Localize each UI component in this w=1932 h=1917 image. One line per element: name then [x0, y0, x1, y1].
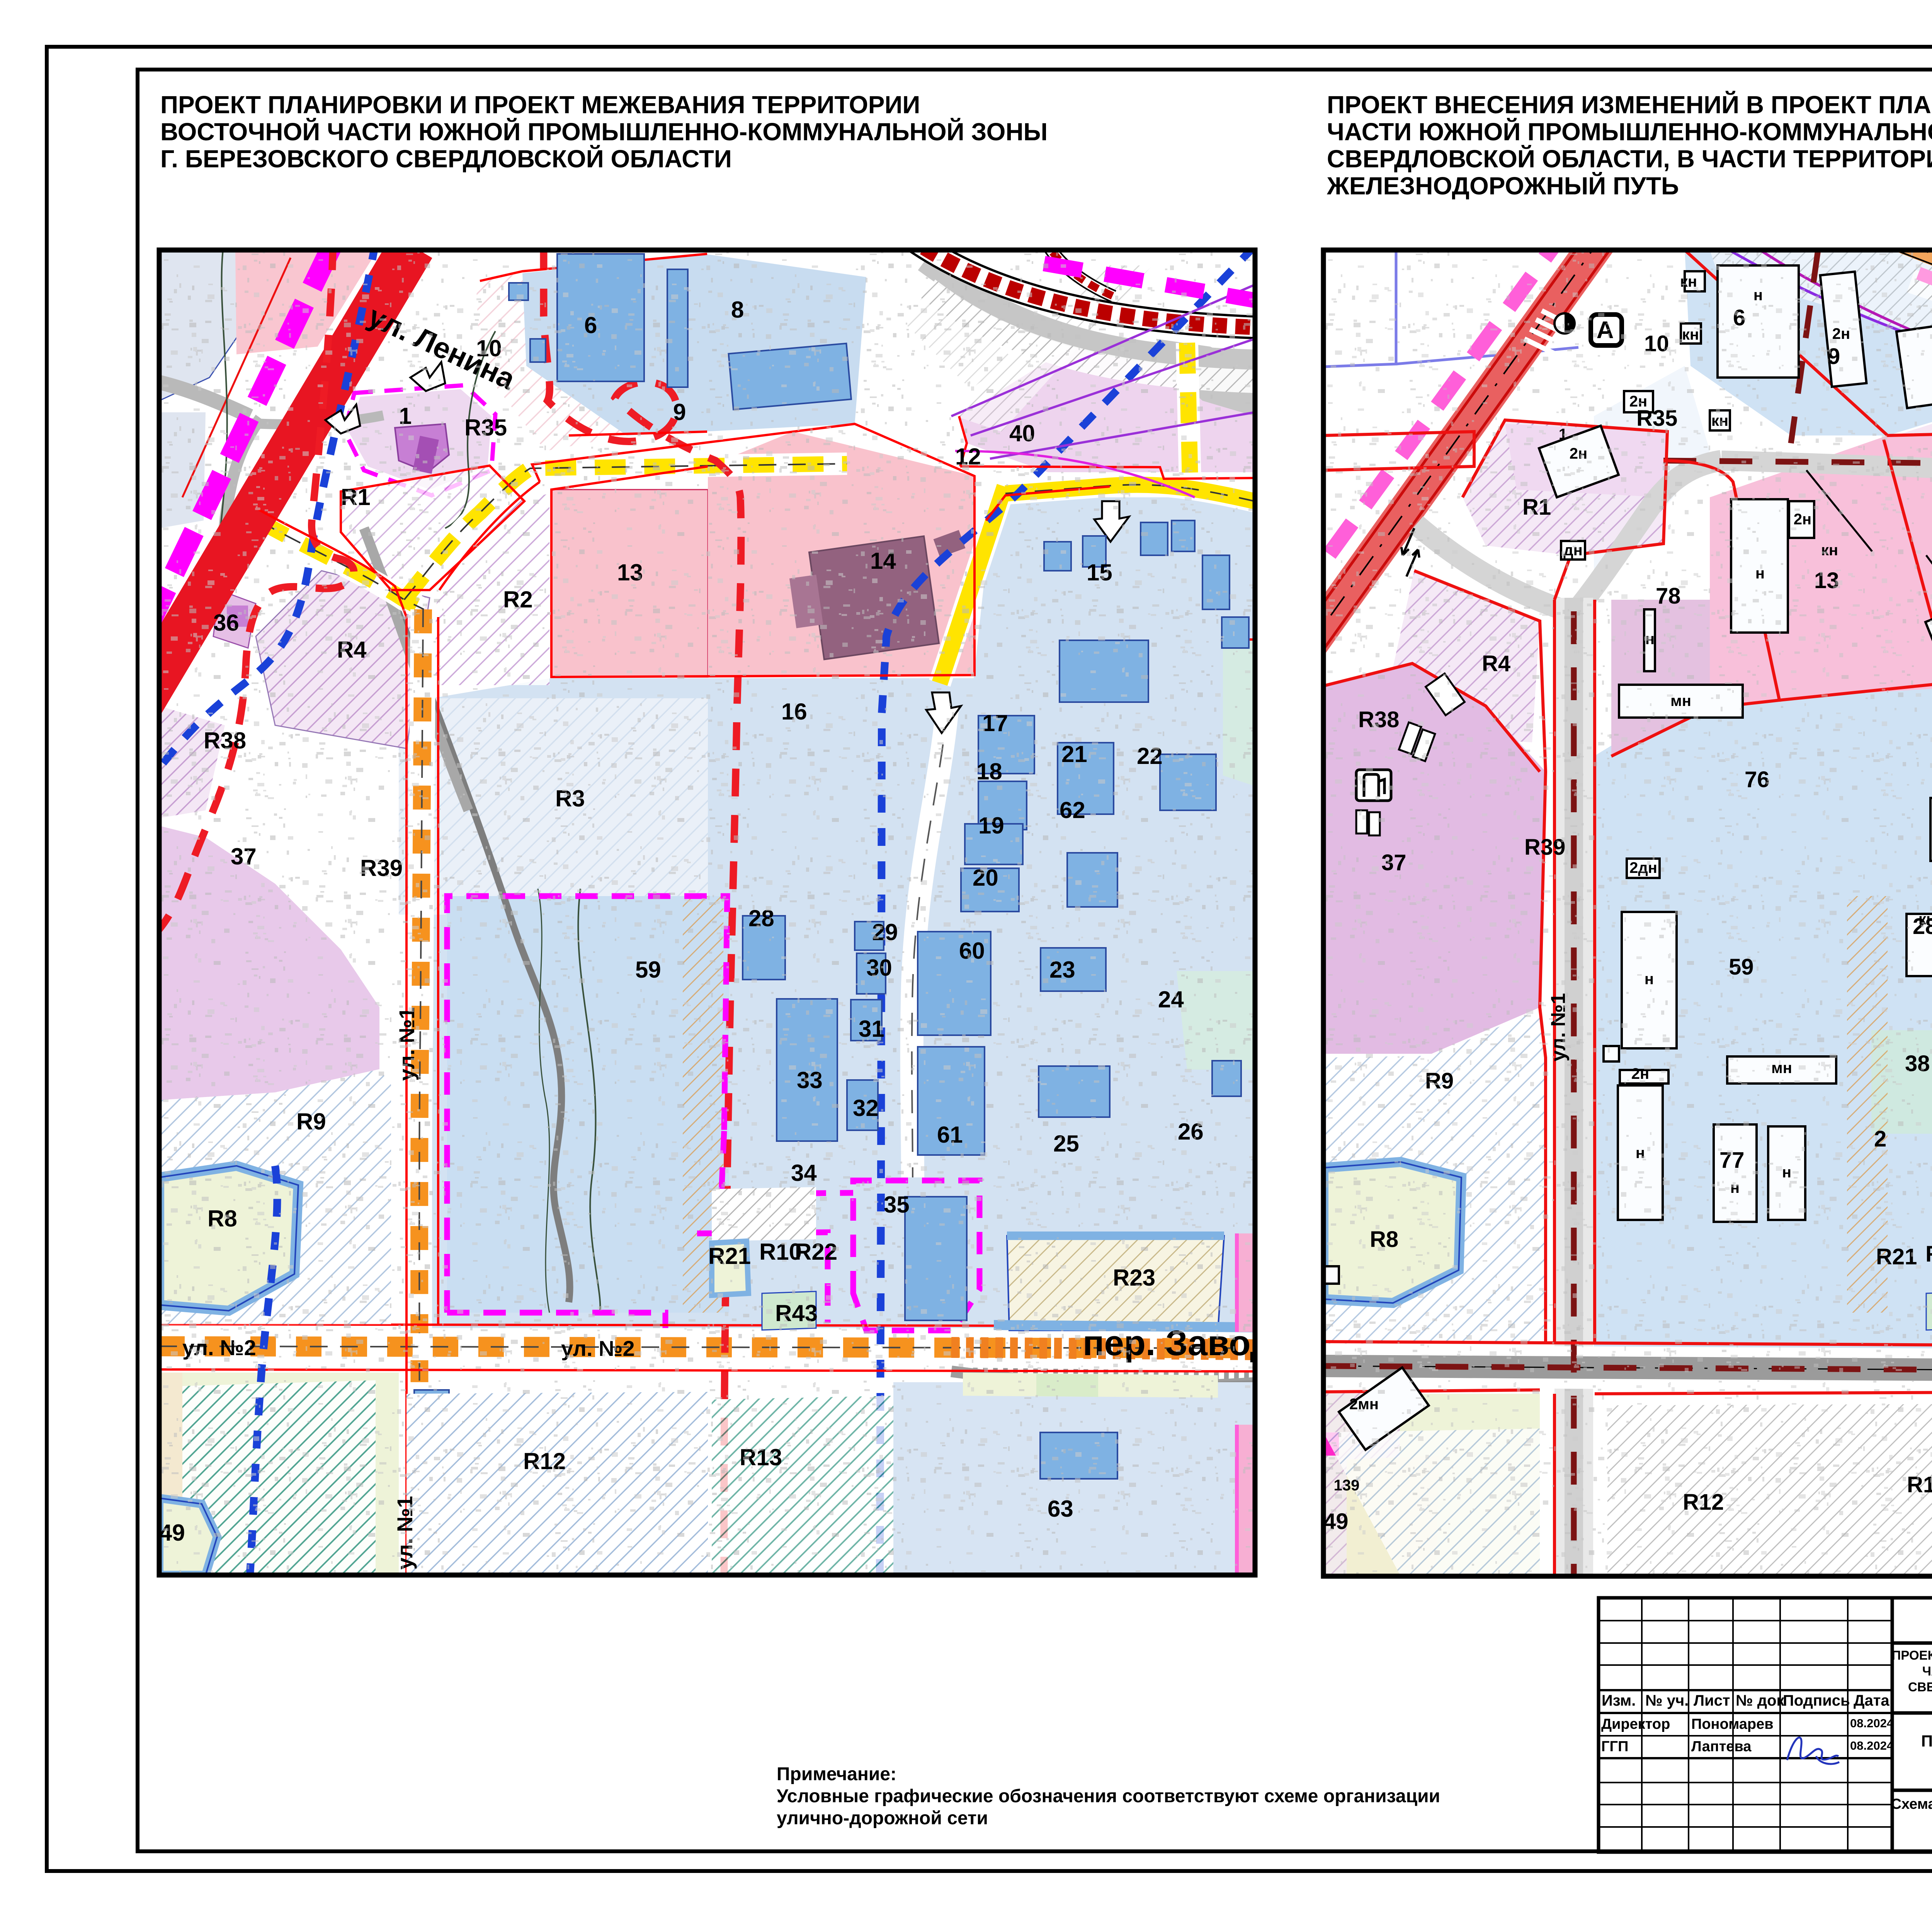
svg-text:ЧАСТИ ЮЖНОЙ ПРОМЫШЛЕННО-КОММУН: ЧАСТИ ЮЖНОЙ ПРОМЫШЛЕННО-КОММУНАЛЬНОЙ ЗОН…: [1922, 1664, 1932, 1678]
svg-text:№ док: № док: [1736, 1692, 1785, 1709]
svg-text:ГГП: ГГП: [1601, 1738, 1628, 1755]
svg-text:ВОСТОЧНОЙ ЧАСТИ ЮЖНОЙ ПРОМЫШЛЕ: ВОСТОЧНОЙ ЧАСТИ ЮЖНОЙ ПРОМЫШЛЕННО-КОММУН…: [160, 117, 1048, 146]
svg-text:ПРОЕКТ ВНЕСЕНИЯ ИЗМЕНЕНИЙ В ПР: ПРОЕКТ ВНЕСЕНИЯ ИЗМЕНЕНИЙ В ПРОЕКТ ПЛАНИ…: [1327, 90, 1932, 119]
svg-text:ПРОЕКТ ВНЕСЕНИЯ ИЗМЕНЕНИЙ В ПР: ПРОЕКТ ВНЕСЕНИЯ ИЗМЕНЕНИЙ В ПРОЕКТ ПЛАНИ…: [1892, 1648, 1932, 1662]
svg-text:Схема организации улично-дорож: Схема организации улично-дорожной сети,: [1891, 1796, 1932, 1812]
svg-text:ПРОЕКТ ПЛАНИРОВКИ И ПРОЕКТ МЕЖ: ПРОЕКТ ПЛАНИРОВКИ И ПРОЕКТ МЕЖЕВАНИЯ ТЕР…: [160, 91, 920, 119]
svg-text:№ уч.: № уч.: [1645, 1692, 1689, 1709]
svg-text:Подпись: Подпись: [1783, 1692, 1850, 1709]
svg-text:Условные графические обозначен: Условные графические обозначения соответ…: [777, 1786, 1440, 1806]
svg-text:Пономарев: Пономарев: [1691, 1716, 1774, 1732]
svg-text:Лист: Лист: [1694, 1692, 1730, 1709]
svg-text:08.2024: 08.2024: [1850, 1739, 1894, 1752]
svg-text:Директор: Директор: [1601, 1716, 1670, 1732]
svg-text:Проект планировки территории: Проект планировки территории: [1921, 1732, 1932, 1750]
svg-text:СВЕРДЛОВСКОЙ ОБЛАСТИ, В ЧАСТИ: СВЕРДЛОВСКОЙ ОБЛАСТИ, В ЧАСТИ ТЕРРИТОРИИ…: [1908, 1679, 1932, 1694]
svg-text:ЖЕЛЕЗНОДОРОЖНЫЙ ПУТЬ: ЖЕЛЕЗНОДОРОЖНЫЙ ПУТЬ: [1327, 172, 1679, 200]
svg-text:Примечание:: Примечание:: [777, 1764, 896, 1784]
svg-text:Дата: Дата: [1854, 1692, 1889, 1709]
svg-text:08.2024: 08.2024: [1850, 1716, 1894, 1730]
svg-text:Изм.: Изм.: [1602, 1692, 1636, 1709]
svg-text:ЧАСТИ ЮЖНОЙ ПРОМЫШЛЕННО-КОММУН: ЧАСТИ ЮЖНОЙ ПРОМЫШЛЕННО-КОММУНАЛЬНОЙ ЗОН…: [1327, 117, 1932, 146]
svg-text:Лаптева: Лаптева: [1691, 1738, 1752, 1755]
svg-text:Г. БЕРЕЗОВСКОГО СВЕРДЛОВСКОЙ О: Г. БЕРЕЗОВСКОГО СВЕРДЛОВСКОЙ ОБЛАСТИ: [160, 145, 732, 173]
svg-text:СВЕРДЛОВСКОЙ ОБЛАСТИ, В ЧАСТИ: СВЕРДЛОВСКОЙ ОБЛАСТИ, В ЧАСТИ ТЕРРИТОРИИ…: [1327, 145, 1932, 173]
svg-text:улично-дорожной сети: улично-дорожной сети: [777, 1808, 988, 1829]
